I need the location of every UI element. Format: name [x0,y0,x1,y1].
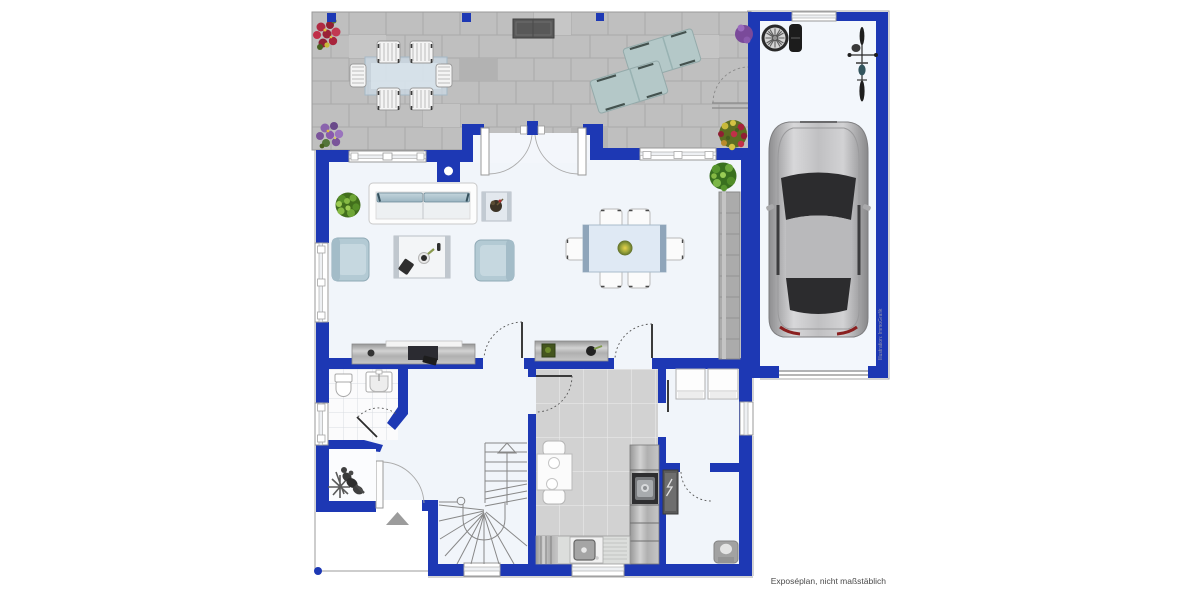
svg-text:Exposéplan, nicht maßstäblich: Exposéplan, nicht maßstäblich [771,576,887,586]
svg-text:Illustration: ImmoGrafik: Illustration: ImmoGrafik [878,308,884,360]
